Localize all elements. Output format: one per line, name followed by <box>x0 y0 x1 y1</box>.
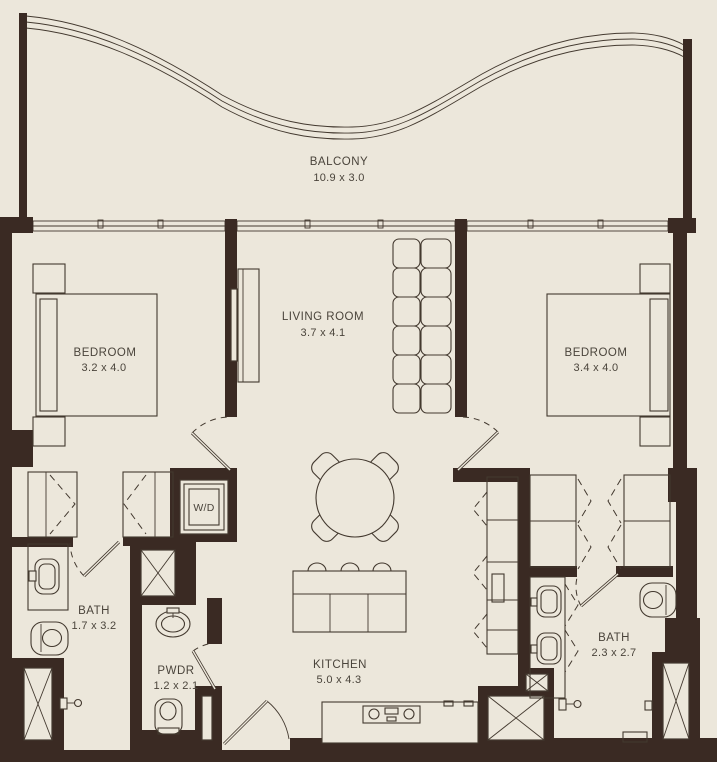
floor-plan: W/D <box>0 0 717 762</box>
kitchen-island <box>293 563 406 632</box>
corner-column-shaft <box>663 663 689 739</box>
bedroom-right-dims: 3.4 x 4.0 <box>574 362 619 374</box>
bath-left-dims: 1.7 x 3.2 <box>72 620 117 632</box>
tv <box>231 289 237 361</box>
kitchen-small-shaft <box>526 674 548 691</box>
balcony-label: BALCONY <box>310 156 368 168</box>
toilet <box>640 583 676 617</box>
hall-shaft <box>141 550 175 596</box>
bedroom-right-label: BEDROOM <box>565 347 628 359</box>
living-room-label: LIVING ROOM <box>282 311 364 323</box>
bath-right-label: BATH <box>598 632 630 644</box>
living-room-dims: 3.7 x 4.1 <box>301 327 346 339</box>
bedroom-left-label: BEDROOM <box>74 347 137 359</box>
dining-table <box>316 459 394 537</box>
faucet <box>531 645 537 653</box>
bath-right-dims: 2.3 x 2.7 <box>592 647 637 659</box>
shower-valve <box>645 701 652 710</box>
faucet <box>531 598 537 606</box>
washer-dryer-label: W/D <box>193 502 214 514</box>
toilet <box>155 699 182 734</box>
bedroom-left-dims: 3.2 x 4.0 <box>82 362 127 374</box>
kitchen-counter <box>322 701 478 743</box>
kitchen-dims: 5.0 x 4.3 <box>317 674 362 686</box>
washer-dryer: W/D <box>180 480 228 534</box>
toilet <box>31 622 68 655</box>
balcony-dims: 10.9 x 3.0 <box>313 172 364 184</box>
entry-wall-niche <box>202 696 212 740</box>
powder-label: PWDR <box>157 665 194 677</box>
faucet <box>29 571 36 581</box>
faucet <box>167 608 179 613</box>
kitchen-label: KITCHEN <box>313 659 367 671</box>
kitchen-shaft <box>488 696 544 740</box>
powder-dims: 1.2 x 2.1 <box>154 680 199 692</box>
shower-shaft-left <box>24 668 52 740</box>
dining-set <box>308 449 401 544</box>
bath-left-label: BATH <box>78 605 110 617</box>
